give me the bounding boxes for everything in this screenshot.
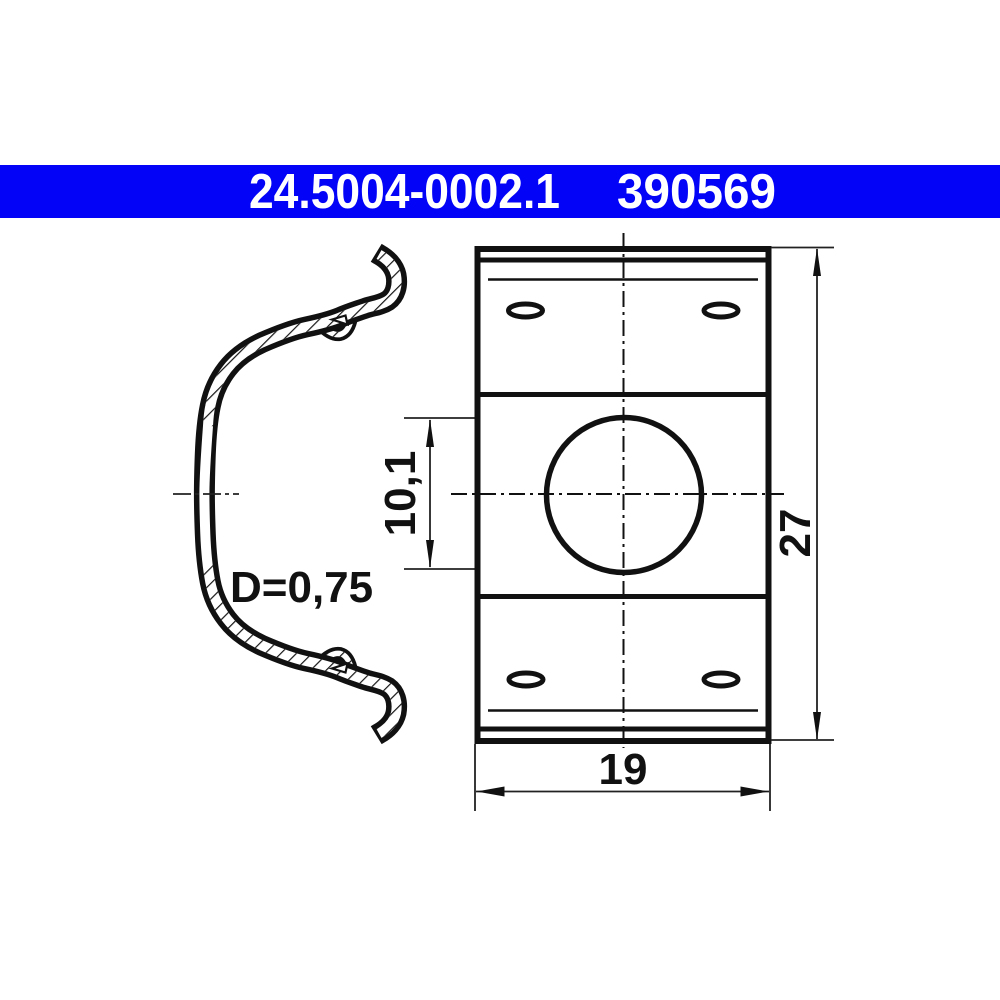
svg-text:D=0,75: D=0,75 (230, 563, 373, 612)
svg-text:390569: 390569 (617, 165, 776, 219)
svg-text:27: 27 (771, 509, 820, 558)
svg-text:19: 19 (599, 745, 648, 794)
svg-text:10,1: 10,1 (376, 451, 425, 537)
svg-text:24.5004-0002.1: 24.5004-0002.1 (249, 165, 560, 219)
